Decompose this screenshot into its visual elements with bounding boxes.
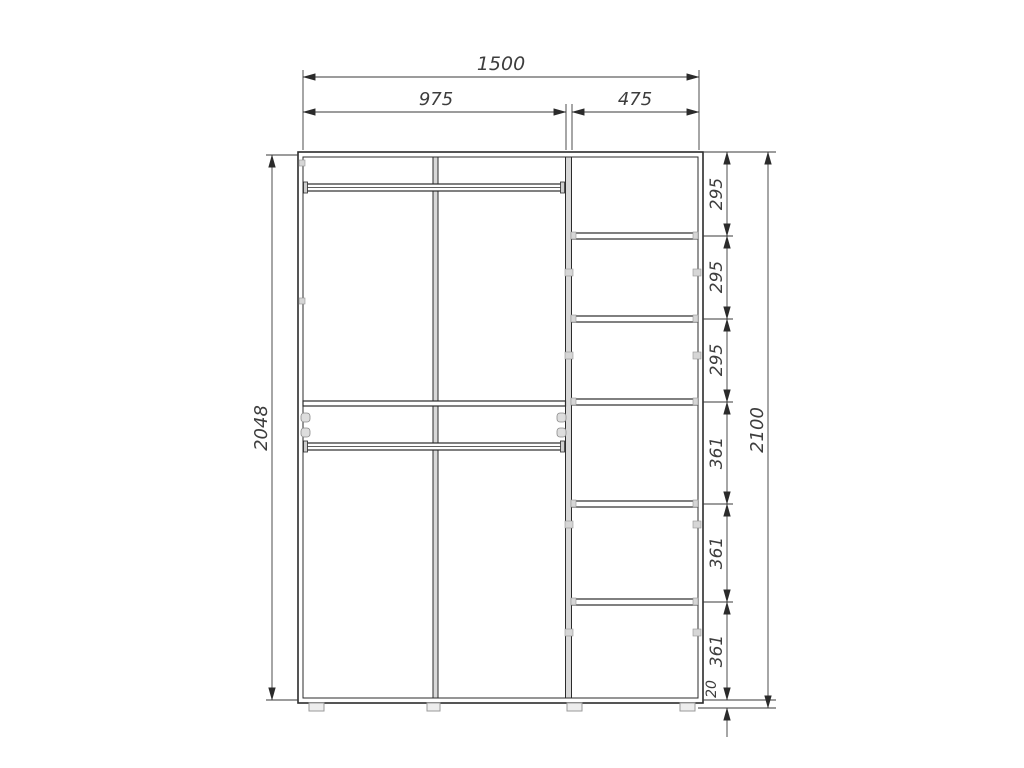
rod-bracket-left bbox=[304, 441, 308, 452]
shelf-5 bbox=[572, 599, 699, 605]
center-divider-panel bbox=[433, 157, 438, 698]
hook-icon bbox=[557, 413, 566, 422]
hook-icon bbox=[301, 413, 310, 422]
panel-fittings bbox=[299, 160, 701, 636]
label-total-width: 1500 bbox=[477, 53, 525, 75]
shelf-3 bbox=[572, 399, 699, 405]
label-gap-2: 295 bbox=[707, 261, 727, 293]
label-right-section-width: 475 bbox=[618, 89, 652, 110]
label-gap-3: 295 bbox=[707, 344, 727, 376]
shelf-1 bbox=[572, 233, 699, 239]
rod-bracket-right bbox=[561, 441, 565, 452]
label-total-height: 2100 bbox=[747, 407, 768, 453]
hook-icon bbox=[301, 428, 310, 437]
technical-drawing-canvas: 1500 975 475 2048 2100 295 295 295 361 3… bbox=[0, 0, 1024, 768]
foot bbox=[309, 703, 324, 711]
shelf-4 bbox=[572, 501, 699, 507]
left-section-shelf bbox=[303, 401, 566, 406]
rod-bracket-right bbox=[561, 182, 565, 193]
wardrobe-technical-drawing: 1500 975 475 2048 2100 295 295 295 361 3… bbox=[0, 0, 1024, 768]
foot bbox=[567, 703, 582, 711]
cabinet-body bbox=[298, 152, 703, 711]
label-plinth-height: 20 bbox=[704, 680, 720, 698]
label-gap-5: 361 bbox=[707, 537, 727, 569]
cabinet-feet bbox=[309, 703, 695, 711]
label-left-section-width: 975 bbox=[419, 89, 453, 110]
partition-panel bbox=[566, 157, 572, 698]
foot bbox=[680, 703, 695, 711]
hanging-rod-top bbox=[304, 182, 565, 193]
label-gap-6: 361 bbox=[707, 635, 727, 667]
label-body-height: 2048 bbox=[251, 405, 272, 451]
rod-bracket-left bbox=[304, 182, 308, 193]
right-section-shelves bbox=[572, 233, 699, 605]
hook-icon bbox=[557, 428, 566, 437]
label-gap-4: 361 bbox=[707, 437, 727, 469]
shelf-2 bbox=[572, 316, 699, 322]
foot bbox=[427, 703, 440, 711]
label-gap-1: 295 bbox=[707, 178, 727, 210]
hanging-rod-middle bbox=[304, 441, 565, 452]
